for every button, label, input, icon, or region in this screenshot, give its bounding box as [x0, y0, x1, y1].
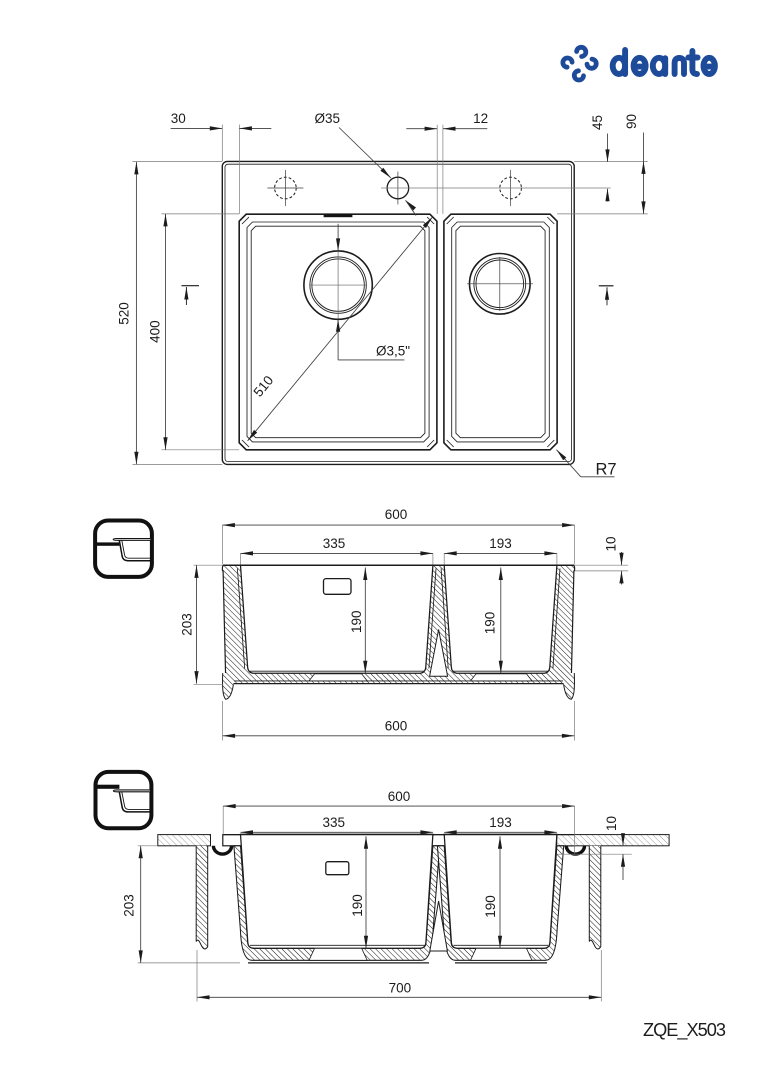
- svg-text:10: 10: [604, 816, 619, 831]
- svg-text:335: 335: [323, 815, 346, 830]
- svg-text:90: 90: [624, 114, 639, 129]
- svg-text:12: 12: [473, 111, 488, 126]
- svg-text:600: 600: [388, 789, 411, 804]
- svg-text:520: 520: [117, 302, 132, 325]
- svg-text:600: 600: [385, 718, 408, 733]
- svg-text:45: 45: [590, 115, 605, 130]
- svg-text:203: 203: [180, 613, 195, 636]
- svg-text:ZQE_X503: ZQE_X503: [643, 1020, 726, 1041]
- svg-text:193: 193: [489, 815, 512, 830]
- svg-text:190: 190: [483, 895, 498, 918]
- svg-text:203: 203: [122, 894, 137, 917]
- svg-text:193: 193: [489, 536, 512, 551]
- svg-text:10: 10: [604, 536, 619, 551]
- svg-text:Ø3,5": Ø3,5": [376, 344, 410, 359]
- svg-text:335: 335: [323, 536, 346, 551]
- svg-text:190: 190: [349, 610, 364, 633]
- svg-text:Ø35: Ø35: [315, 111, 341, 126]
- svg-text:190: 190: [350, 894, 365, 917]
- svg-text:400: 400: [148, 320, 163, 343]
- svg-text:700: 700: [389, 980, 412, 995]
- svg-text:R7: R7: [595, 460, 616, 478]
- svg-text:30: 30: [171, 111, 186, 126]
- svg-text:190: 190: [482, 612, 497, 635]
- svg-text:600: 600: [385, 507, 408, 522]
